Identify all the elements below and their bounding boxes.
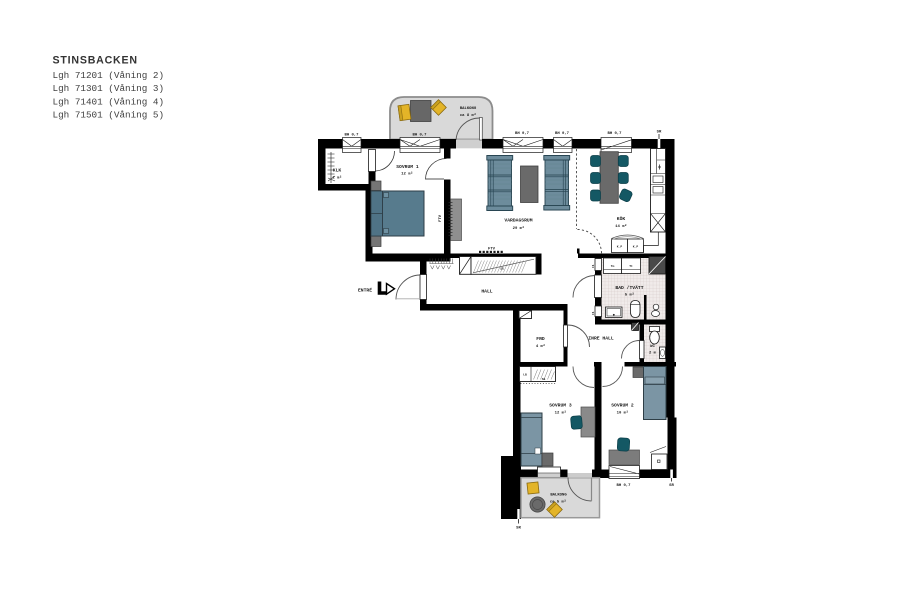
svg-text:29 m²: 29 m² — [513, 226, 525, 231]
svg-text:HALL: HALL — [481, 289, 492, 295]
svg-text:F1: F1 — [592, 264, 595, 268]
svg-text:KÖK: KÖK — [617, 215, 626, 222]
svg-text:14 m²: 14 m² — [615, 224, 627, 229]
svg-text:KLK: KLK — [333, 168, 342, 174]
svg-text:STINSBACKEN: STINSBACKEN — [53, 55, 138, 67]
svg-text:K.P: K.P — [633, 246, 639, 249]
svg-text:Tm: Tm — [611, 265, 615, 268]
svg-text:SR: SR — [669, 484, 674, 488]
svg-text:10 m²: 10 m² — [617, 411, 629, 416]
svg-text:LB: LB — [523, 374, 527, 377]
svg-text:BALKONG: BALKONG — [460, 107, 477, 111]
svg-text:2 m: 2 m — [649, 352, 657, 356]
svg-text:SG: SG — [500, 268, 504, 271]
svg-text:Tt: Tt — [629, 265, 633, 268]
svg-text:ca 8 m²: ca 8 m² — [460, 113, 476, 118]
svg-text:VARDAGSRUM: VARDAGSRUM — [504, 218, 532, 224]
svg-text:K.P: K.P — [617, 246, 623, 249]
svg-text:4 m²: 4 m² — [536, 344, 545, 349]
svg-text:BAD /TVÄTT: BAD /TVÄTT — [615, 284, 643, 291]
svg-text:ENTRÉ: ENTRÉ — [358, 287, 372, 294]
svg-text:SG: SG — [542, 378, 546, 381]
svg-text:Lgh 71401 (Våning 4): Lgh 71401 (Våning 4) — [53, 96, 165, 107]
svg-text:BALKONG: BALKONG — [550, 494, 567, 498]
svg-text:12 m²: 12 m² — [401, 172, 413, 177]
svg-text:FRD: FRD — [536, 336, 545, 342]
svg-text:SR: SR — [657, 131, 662, 135]
svg-text:BH 0,7: BH 0,7 — [412, 134, 427, 138]
svg-text:SOVRUM 3: SOVRUM 3 — [549, 403, 572, 409]
svg-text:2 m²: 2 m² — [332, 176, 341, 181]
svg-text:SOVRUM 1: SOVRUM 1 — [396, 164, 419, 170]
svg-text:WC: WC — [650, 345, 655, 349]
svg-text:Lgh 71201 (Våning 2): Lgh 71201 (Våning 2) — [53, 70, 165, 81]
svg-text:SOVRUM 2: SOVRUM 2 — [611, 403, 634, 409]
svg-text:BH 0,7: BH 0,7 — [607, 132, 622, 136]
svg-text:F1: F1 — [592, 311, 595, 315]
svg-text:INRE HALL: INRE HALL — [588, 336, 614, 342]
svg-text:FTV: FTV — [439, 214, 443, 222]
svg-text:BH 0,7: BH 0,7 — [555, 132, 570, 136]
svg-text:Lgh 71501 (Våning 5): Lgh 71501 (Våning 5) — [53, 110, 165, 121]
svg-text:BH 0,7: BH 0,7 — [515, 132, 530, 136]
svg-text:BH 0,7: BH 0,7 — [344, 134, 359, 138]
svg-text:12 m²: 12 m² — [555, 411, 567, 416]
svg-text:SR: SR — [516, 527, 521, 531]
svg-text:Lgh 71301 (Våning 3): Lgh 71301 (Våning 3) — [53, 83, 165, 94]
svg-text:ca 5 m²: ca 5 m² — [550, 500, 566, 505]
svg-text:BH 0,7: BH 0,7 — [616, 484, 631, 488]
svg-text:5 m²: 5 m² — [625, 293, 634, 298]
